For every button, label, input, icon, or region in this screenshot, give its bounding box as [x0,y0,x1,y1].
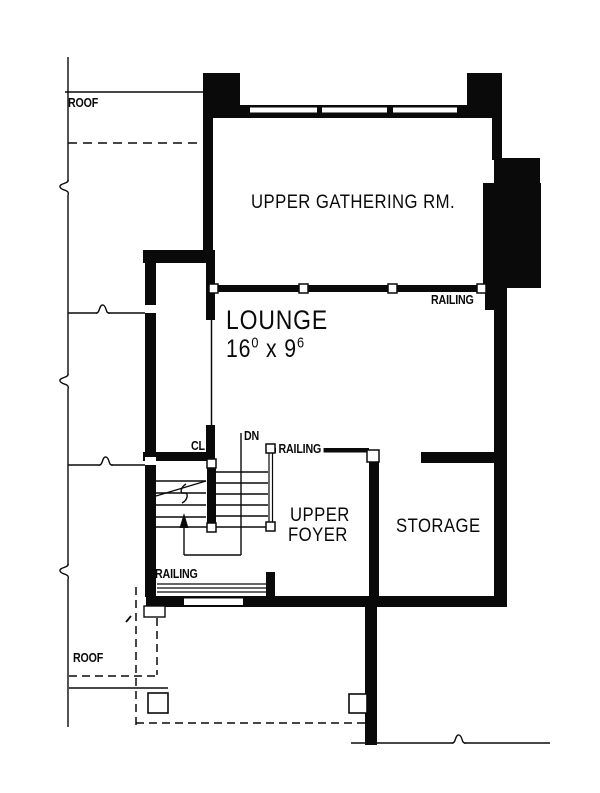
post [207,523,216,532]
lounge-dimensions: 160 x 96 [226,336,305,362]
post [299,284,308,293]
window [250,108,317,113]
dim-separator: x [259,335,284,363]
floor-plan: ROOF UPPER GATHERING RM. RAILING LOUNGE … [0,0,600,793]
fireplace [483,183,541,288]
window [145,457,156,465]
break-symbol [96,305,110,313]
pier-top-left [203,73,240,118]
wall-stub-below [365,607,377,745]
upper-foyer-label-line1: UPPER [290,506,350,526]
break-symbol [60,564,68,579]
break-symbol [60,180,68,195]
footing-square [148,693,168,713]
dim-inches-1: 0 [251,335,259,352]
storage-label: STORAGE [396,517,481,537]
dim-feet-1: 16 [226,335,251,363]
break-symbol [60,374,68,389]
post [266,444,275,453]
window [145,305,156,313]
dim-feet-2: 9 [284,335,297,363]
wall-exterior-left [145,263,156,597]
railing-label-upper: RAILING [431,293,474,307]
stairs-down-label: DN [244,429,259,443]
closet-label: CL [191,439,205,453]
post [477,284,486,293]
post [367,450,379,462]
wall-exterior-right [494,288,507,607]
window [393,108,457,113]
stair-newel-wall [207,461,216,532]
reference-lines [60,57,550,743]
wall-gathering-left [203,118,213,263]
wall-cap [143,250,215,263]
railing-label-lower: RAILING [155,567,198,581]
post [209,284,218,293]
roof-label-top: ROOF [68,96,98,110]
roof-label-bottom: ROOF [73,651,103,665]
post [207,459,216,468]
tick-mark [126,616,131,622]
upper-gathering-room-label: UPPER GATHERING RM. [251,193,455,213]
wall-storage-top [421,452,494,463]
corner-sill [144,606,165,617]
break-symbol [99,457,113,465]
wall-foyer-divider [369,452,379,597]
break-symbol [452,735,466,743]
railing-upper-band [213,285,485,292]
pier-top-right [467,73,502,118]
post [388,284,397,293]
railing-lower-lines [157,584,266,592]
railing-label-stairs: RAILING [276,442,324,456]
stair-direction-arrow [180,513,189,528]
upper-foyer-label-line2: FOYER [288,526,348,546]
roof-outline-dashed [136,587,365,725]
lounge-label: LOUNGE [226,306,328,334]
newel-post-bottom [266,572,275,597]
floor-plan-drawing [0,0,600,793]
wall-right-upper [492,118,502,160]
window [184,599,243,606]
footing-square [349,694,367,713]
dim-inches-2: 6 [297,335,305,352]
walls [143,73,541,745]
footing-squares [148,693,367,713]
window [322,108,387,113]
post [266,522,275,531]
